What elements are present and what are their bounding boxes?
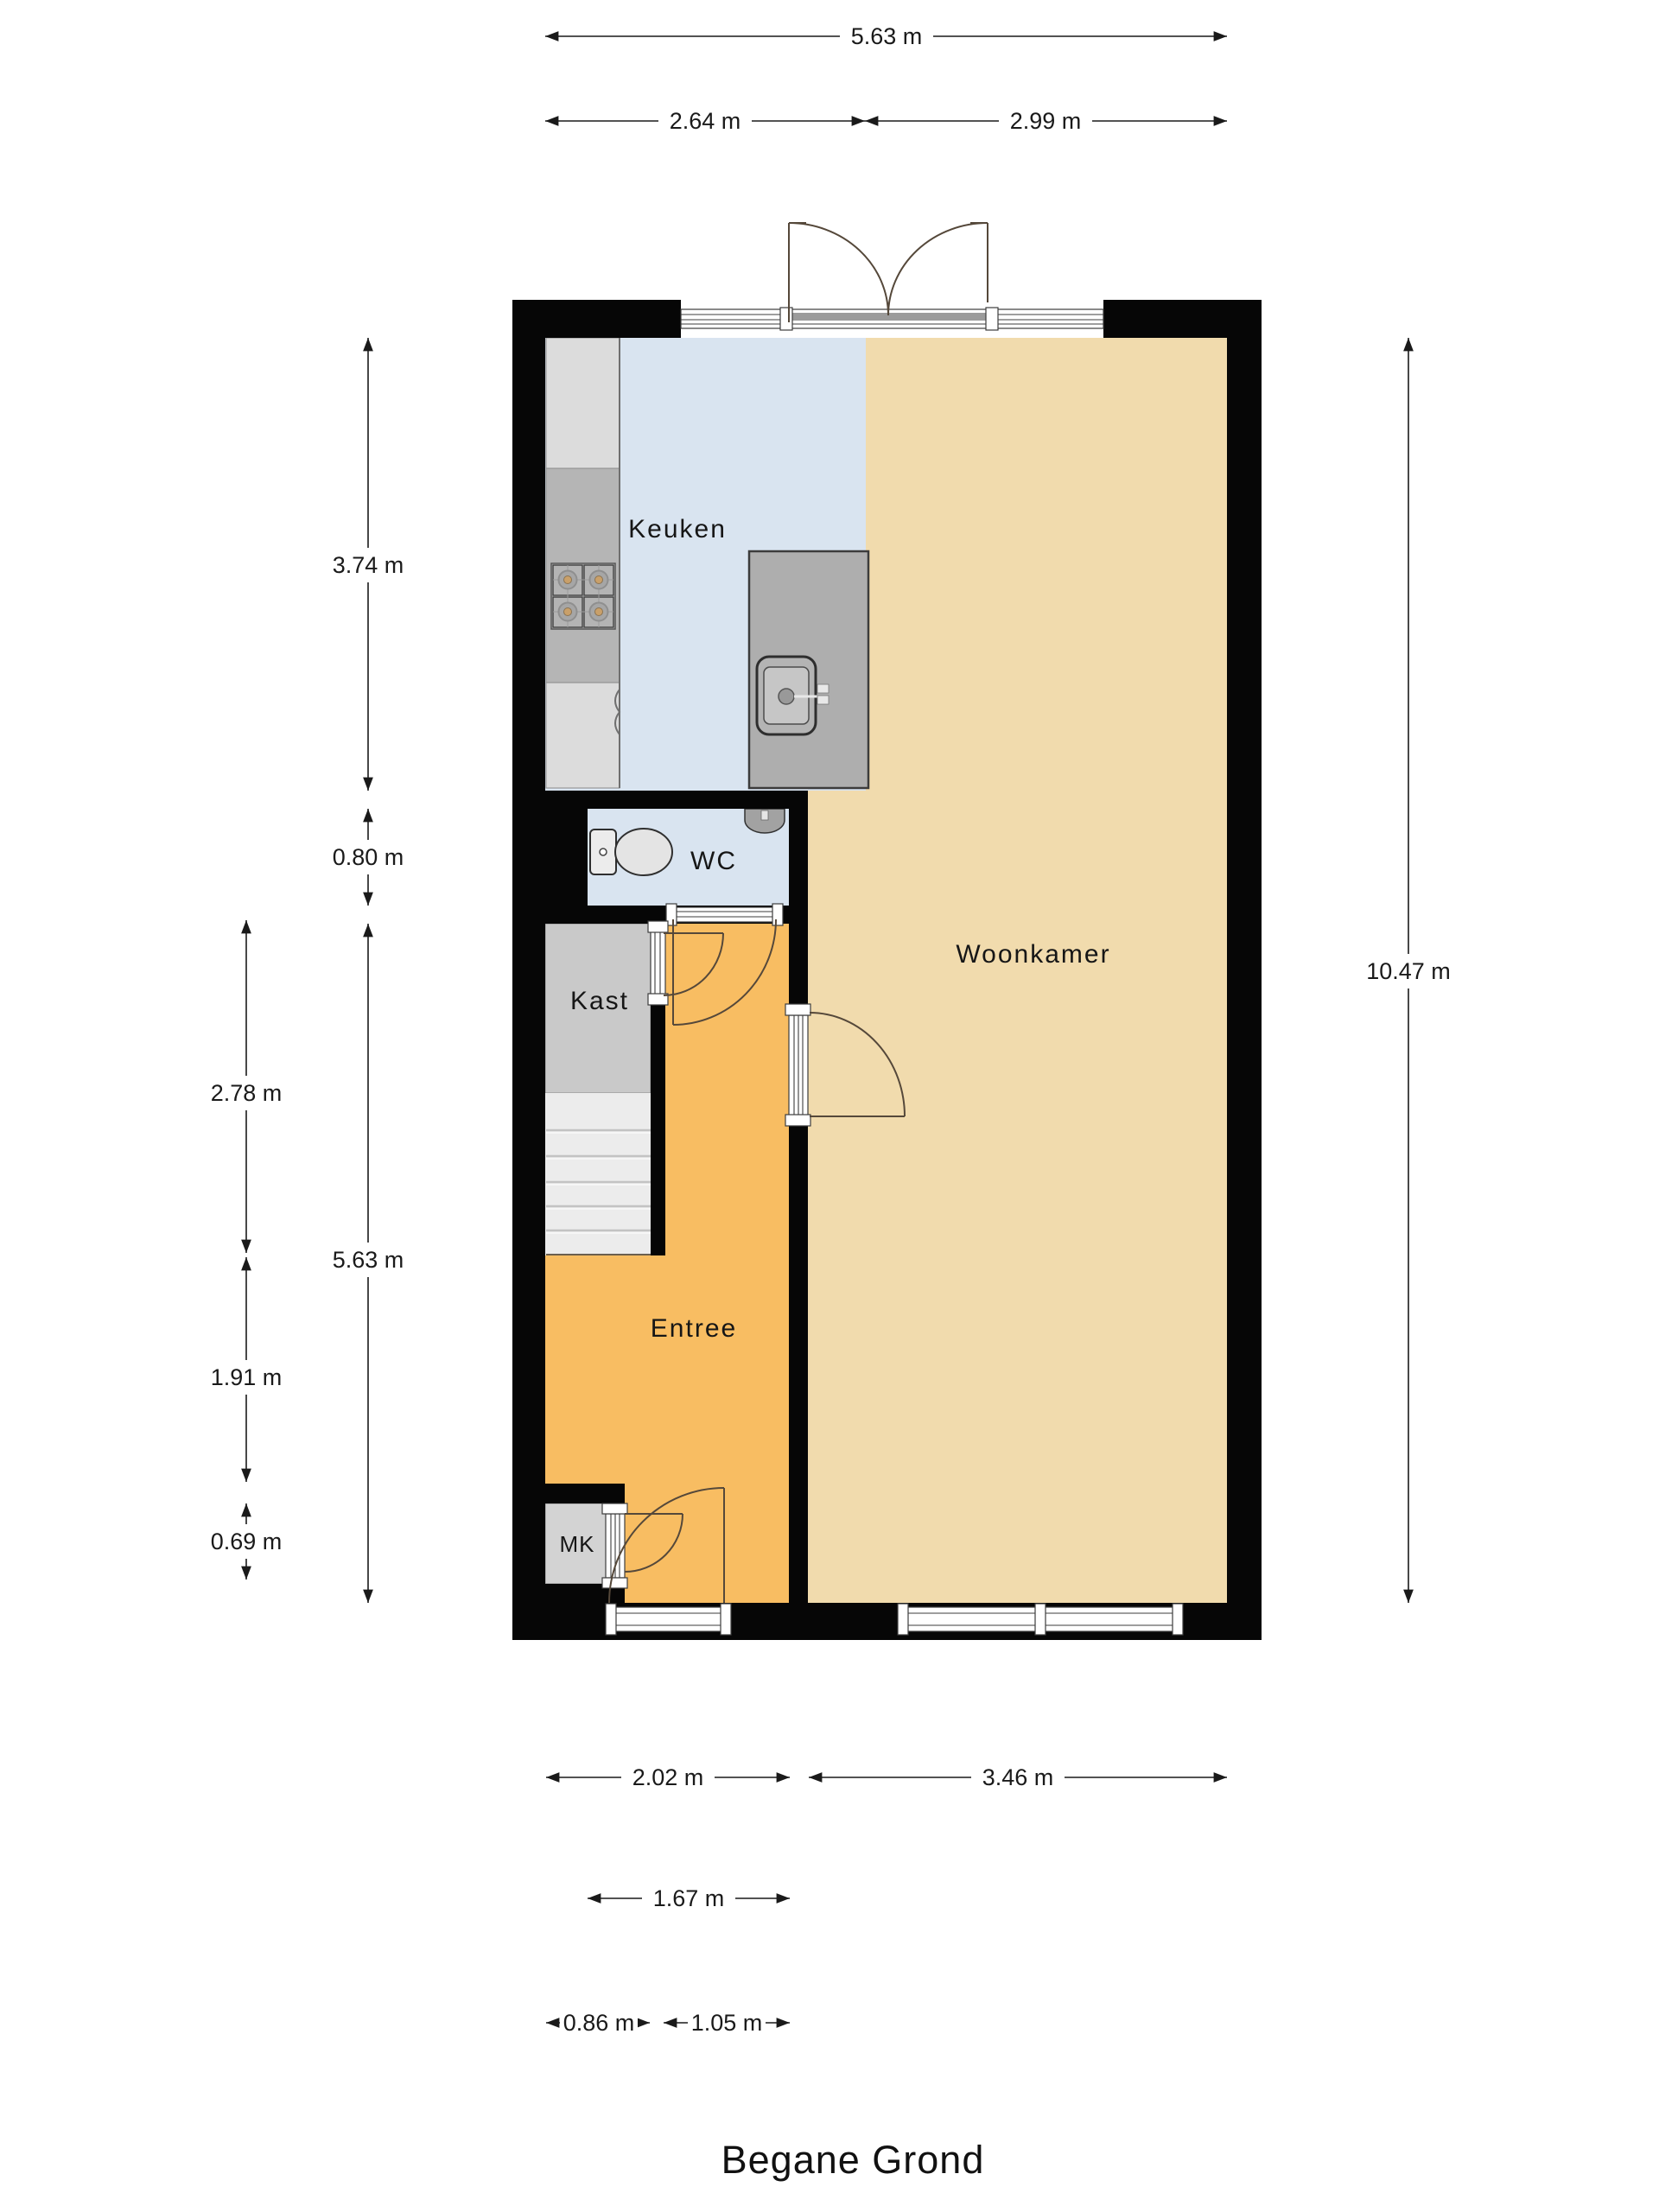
dim-right-1047: 10.47 m xyxy=(1366,958,1451,984)
dim-left-278: 2.78 m xyxy=(211,1080,283,1106)
bottom-window xyxy=(898,1604,1183,1635)
stairs xyxy=(545,1093,651,1255)
dim-top-total: 5.63 m xyxy=(851,23,923,49)
wc-door-threshold xyxy=(666,904,783,925)
wc-sink-icon xyxy=(745,809,785,833)
room-label-kast: Kast xyxy=(570,987,629,1015)
woonkamer-door-frame xyxy=(785,1004,810,1126)
room-label-entree: Entree xyxy=(651,1314,737,1343)
dim-bottom-167: 1.67 m xyxy=(653,1885,725,1911)
dim-top-left: 2.64 m xyxy=(670,108,741,134)
french-door-right xyxy=(888,223,988,315)
dim-bottom-346: 3.46 m xyxy=(982,1764,1054,1790)
room-label-mk: MK xyxy=(560,1531,595,1557)
dim-left-080: 0.80 m xyxy=(333,844,404,870)
woonkamer-floor-lower xyxy=(808,791,1227,1605)
french-door-left xyxy=(789,223,888,322)
dim-left-191: 1.91 m xyxy=(211,1364,283,1390)
floorplan-page: Keuken WC Kast Woonkamer Entree MK 5.63 … xyxy=(0,0,1659,2212)
dim-bottom-202: 2.02 m xyxy=(632,1764,704,1790)
woonkamer-floor-upper xyxy=(866,338,1227,791)
room-label-keuken: Keuken xyxy=(628,515,727,543)
kitchen-island xyxy=(749,551,868,788)
dim-bottom-105: 1.05 m xyxy=(691,2010,763,2036)
dim-left-563: 5.63 m xyxy=(333,1247,404,1273)
dim-top-right: 2.99 m xyxy=(1010,108,1082,134)
room-label-wc: WC xyxy=(690,847,737,875)
page-title: Begane Grond xyxy=(721,2138,985,2182)
front-door-threshold xyxy=(606,1604,731,1635)
room-label-woonkamer: Woonkamer xyxy=(956,940,1110,969)
top-window xyxy=(681,308,1103,330)
dim-bottom-086: 0.86 m xyxy=(563,2010,635,2036)
dim-left-374: 3.74 m xyxy=(333,552,404,578)
floorplan-svg: Keuken WC Kast Woonkamer Entree MK 5.63 … xyxy=(0,0,1659,2212)
stove-icon xyxy=(551,563,615,629)
dim-left-069: 0.69 m xyxy=(211,1529,283,1554)
toilet-icon xyxy=(590,829,672,875)
